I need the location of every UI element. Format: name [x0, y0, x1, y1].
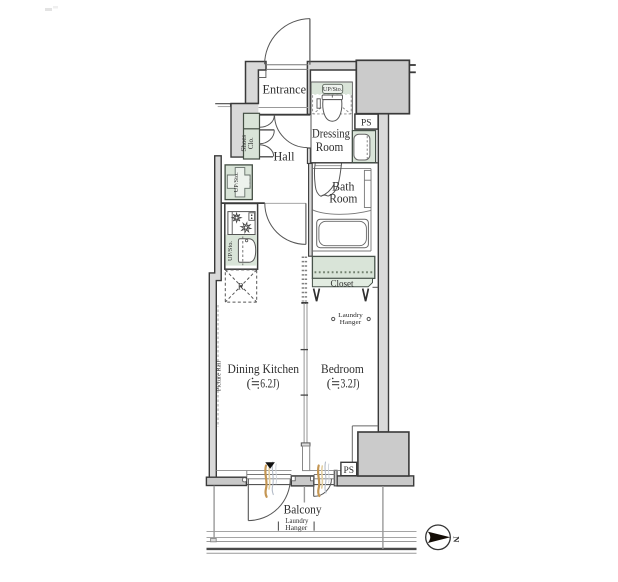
svg-text:Hanger: Hanger	[285, 524, 308, 532]
svg-text:3.2J): 3.2J)	[341, 377, 360, 391]
svg-text:Closet: Closet	[331, 279, 354, 289]
svg-text:R: R	[238, 281, 245, 291]
svg-text:Room: Room	[316, 140, 344, 154]
svg-text:Dining Kitchen: Dining Kitchen	[228, 361, 300, 376]
svg-text:Balcony: Balcony	[284, 502, 323, 516]
svg-text:PS: PS	[361, 117, 372, 127]
svg-text:(: (	[247, 377, 251, 391]
svg-text:Hanger: Hanger	[340, 319, 362, 326]
svg-text:Laundry: Laundry	[338, 312, 363, 319]
svg-text:N: N	[452, 536, 462, 543]
svg-text:Entrance: Entrance	[263, 83, 307, 97]
svg-text:UP/Sto.: UP/Sto.	[233, 172, 240, 192]
svg-text:Hall: Hall	[274, 149, 296, 163]
svg-text:Bedroom: Bedroom	[321, 361, 364, 376]
svg-text:Clo.: Clo.	[247, 137, 255, 149]
svg-text:UP/Sto.: UP/Sto.	[323, 86, 343, 93]
svg-text:(: (	[327, 377, 331, 391]
svg-text:PS: PS	[344, 465, 355, 475]
svg-text:UP/Sto.: UP/Sto.	[227, 241, 234, 261]
svg-text:Room: Room	[329, 191, 358, 205]
svg-text:Dressing: Dressing	[312, 127, 350, 141]
svg-text:6.2J): 6.2J)	[260, 377, 279, 391]
svg-text:Picture Rail: Picture Rail	[216, 361, 223, 392]
